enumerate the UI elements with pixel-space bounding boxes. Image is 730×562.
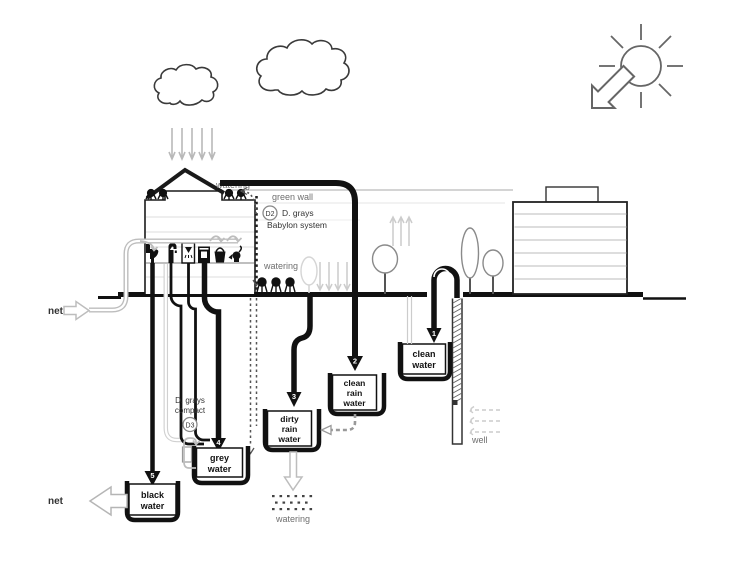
watering-plant-icon	[257, 278, 267, 292]
tree-icon	[373, 245, 398, 294]
rain-arrows-icon	[169, 128, 215, 159]
poplar-tree-icon	[462, 228, 479, 294]
faint-tree-icon	[301, 257, 317, 293]
water-system-diagram: watering green wall D2 D. grays Babylon …	[0, 0, 730, 562]
d2-name-label: D. grays	[282, 208, 314, 218]
svg-text:water: water	[207, 464, 232, 474]
tank-grey-water: grey water	[194, 446, 248, 483]
svg-text:water: water	[342, 398, 366, 408]
sun-reuse-icon	[592, 24, 683, 108]
washing-machine-icon	[198, 247, 210, 264]
garden-watering: watering	[254, 261, 300, 293]
net-discharge-label: net	[48, 496, 64, 507]
diagram-canvas: watering green wall D2 D. grays Babylon …	[0, 0, 730, 562]
watering-plant-icon	[285, 278, 295, 292]
watering-bottom-label: watering	[275, 514, 310, 524]
watering-outlet-arrow	[285, 452, 303, 490]
watering-plant-icon	[271, 278, 281, 292]
runoff-pipe	[294, 296, 310, 393]
svg-text:D. grays: D. grays	[175, 396, 205, 405]
svg-text:black: black	[141, 490, 165, 500]
svg-text:D3: D3	[186, 423, 195, 430]
recirculation-dotted-lines	[247, 280, 260, 454]
well	[453, 296, 463, 444]
cloud-large-icon	[257, 40, 349, 95]
overflow-dashed-pipe	[322, 414, 356, 435]
svg-text:clean: clean	[344, 378, 366, 388]
clean-water-casing-lines	[408, 296, 412, 344]
tank-dirty-rain-water: dirty rain water	[265, 409, 319, 450]
net-outlet-arrow	[90, 487, 127, 515]
green-wall-label: green wall	[272, 192, 313, 202]
net-supply-label: net	[48, 306, 64, 317]
svg-text:rain: rain	[282, 424, 298, 434]
tree-icon	[483, 250, 503, 294]
svg-text:D2: D2	[266, 211, 275, 218]
arrow-number-5: 5	[150, 471, 154, 480]
svg-text:water: water	[277, 434, 301, 444]
svg-text:clean: clean	[412, 349, 435, 359]
tank-clean-water: clean water	[400, 342, 450, 379]
svg-text:compact: compact	[175, 406, 206, 415]
net-inlet-arrow	[64, 302, 89, 320]
arrow-number-3: 3	[292, 392, 296, 401]
right-building	[513, 187, 627, 294]
tank-clean-rain-water: clean rain water	[330, 373, 384, 414]
svg-text:grey: grey	[210, 453, 229, 463]
arrow-number-2: 2	[353, 357, 357, 366]
d2-badge: D2	[263, 206, 277, 220]
cloud-small-icon	[154, 65, 217, 105]
evaporation-arrows-icon	[390, 217, 412, 246]
arrow-number-1: 1	[432, 329, 436, 338]
roof-plant-icon	[224, 190, 234, 200]
svg-text:dirty: dirty	[280, 414, 299, 424]
svg-text:water: water	[411, 360, 436, 370]
watering-garden-label: watering	[263, 261, 298, 271]
sprinkle-marks	[272, 495, 312, 510]
d2-system-label: Babylon system	[267, 220, 327, 230]
ground-line	[98, 295, 686, 299]
tank-black-water: black water	[127, 481, 178, 520]
svg-text:rain: rain	[347, 388, 363, 398]
svg-text:water: water	[140, 501, 165, 511]
garden-rain-arrows-icon	[317, 262, 350, 290]
well-label: well	[471, 435, 488, 445]
groundwater-arrows-icon	[469, 407, 500, 436]
